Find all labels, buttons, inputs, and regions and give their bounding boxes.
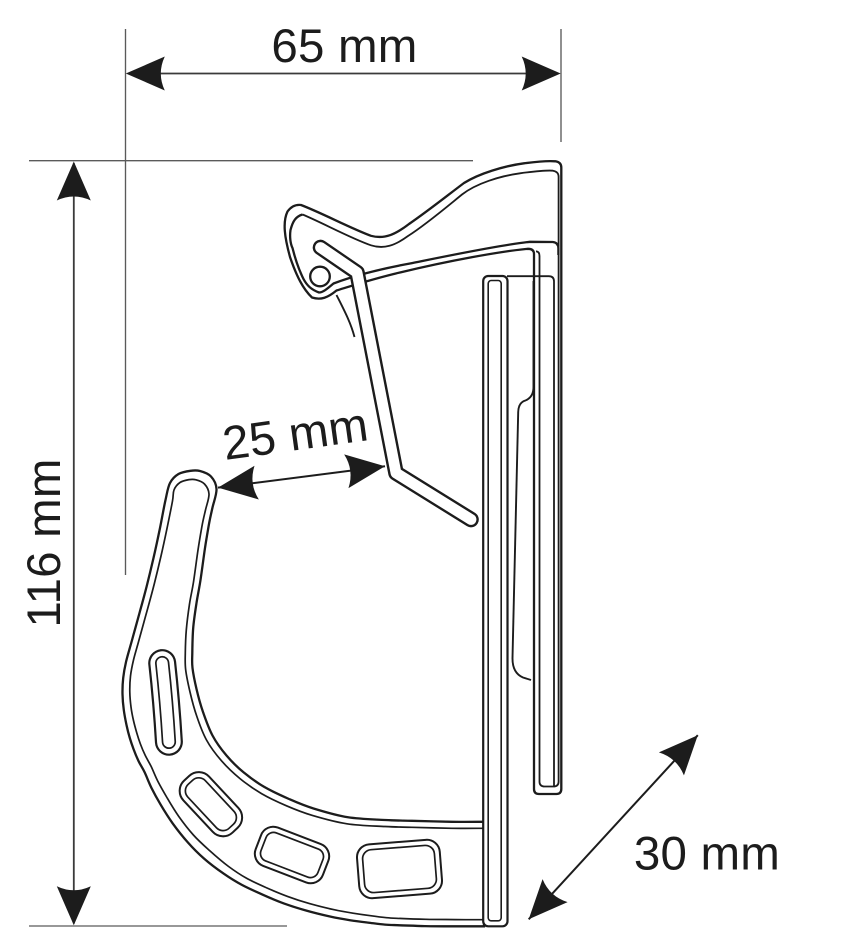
svg-text:116 mm: 116 mm bbox=[18, 458, 71, 627]
svg-text:65 mm: 65 mm bbox=[271, 20, 417, 73]
svg-text:30 mm: 30 mm bbox=[634, 828, 780, 881]
